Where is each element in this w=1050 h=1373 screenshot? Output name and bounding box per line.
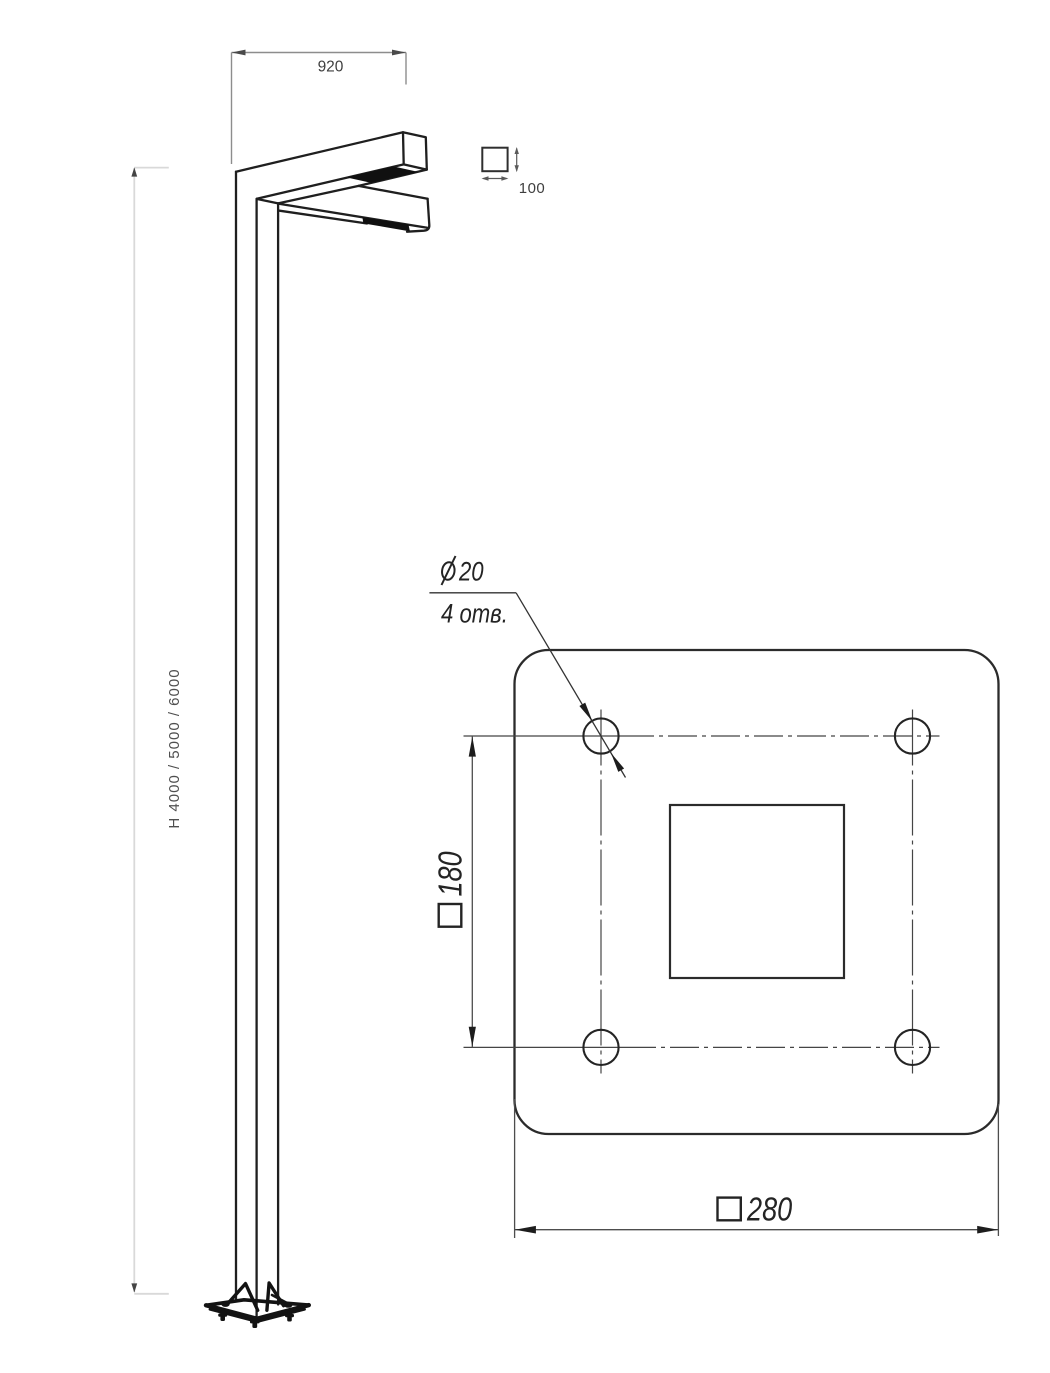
svg-text:180: 180	[433, 851, 469, 896]
svg-text:920: 920	[318, 59, 344, 76]
svg-text:20: 20	[458, 558, 484, 588]
svg-text:H 4000 / 5000 / 6000: H 4000 / 5000 / 6000	[166, 668, 183, 828]
svg-text:280: 280	[746, 1192, 792, 1228]
svg-text:100: 100	[519, 180, 546, 197]
svg-text:4 отв.: 4 отв.	[441, 600, 508, 630]
